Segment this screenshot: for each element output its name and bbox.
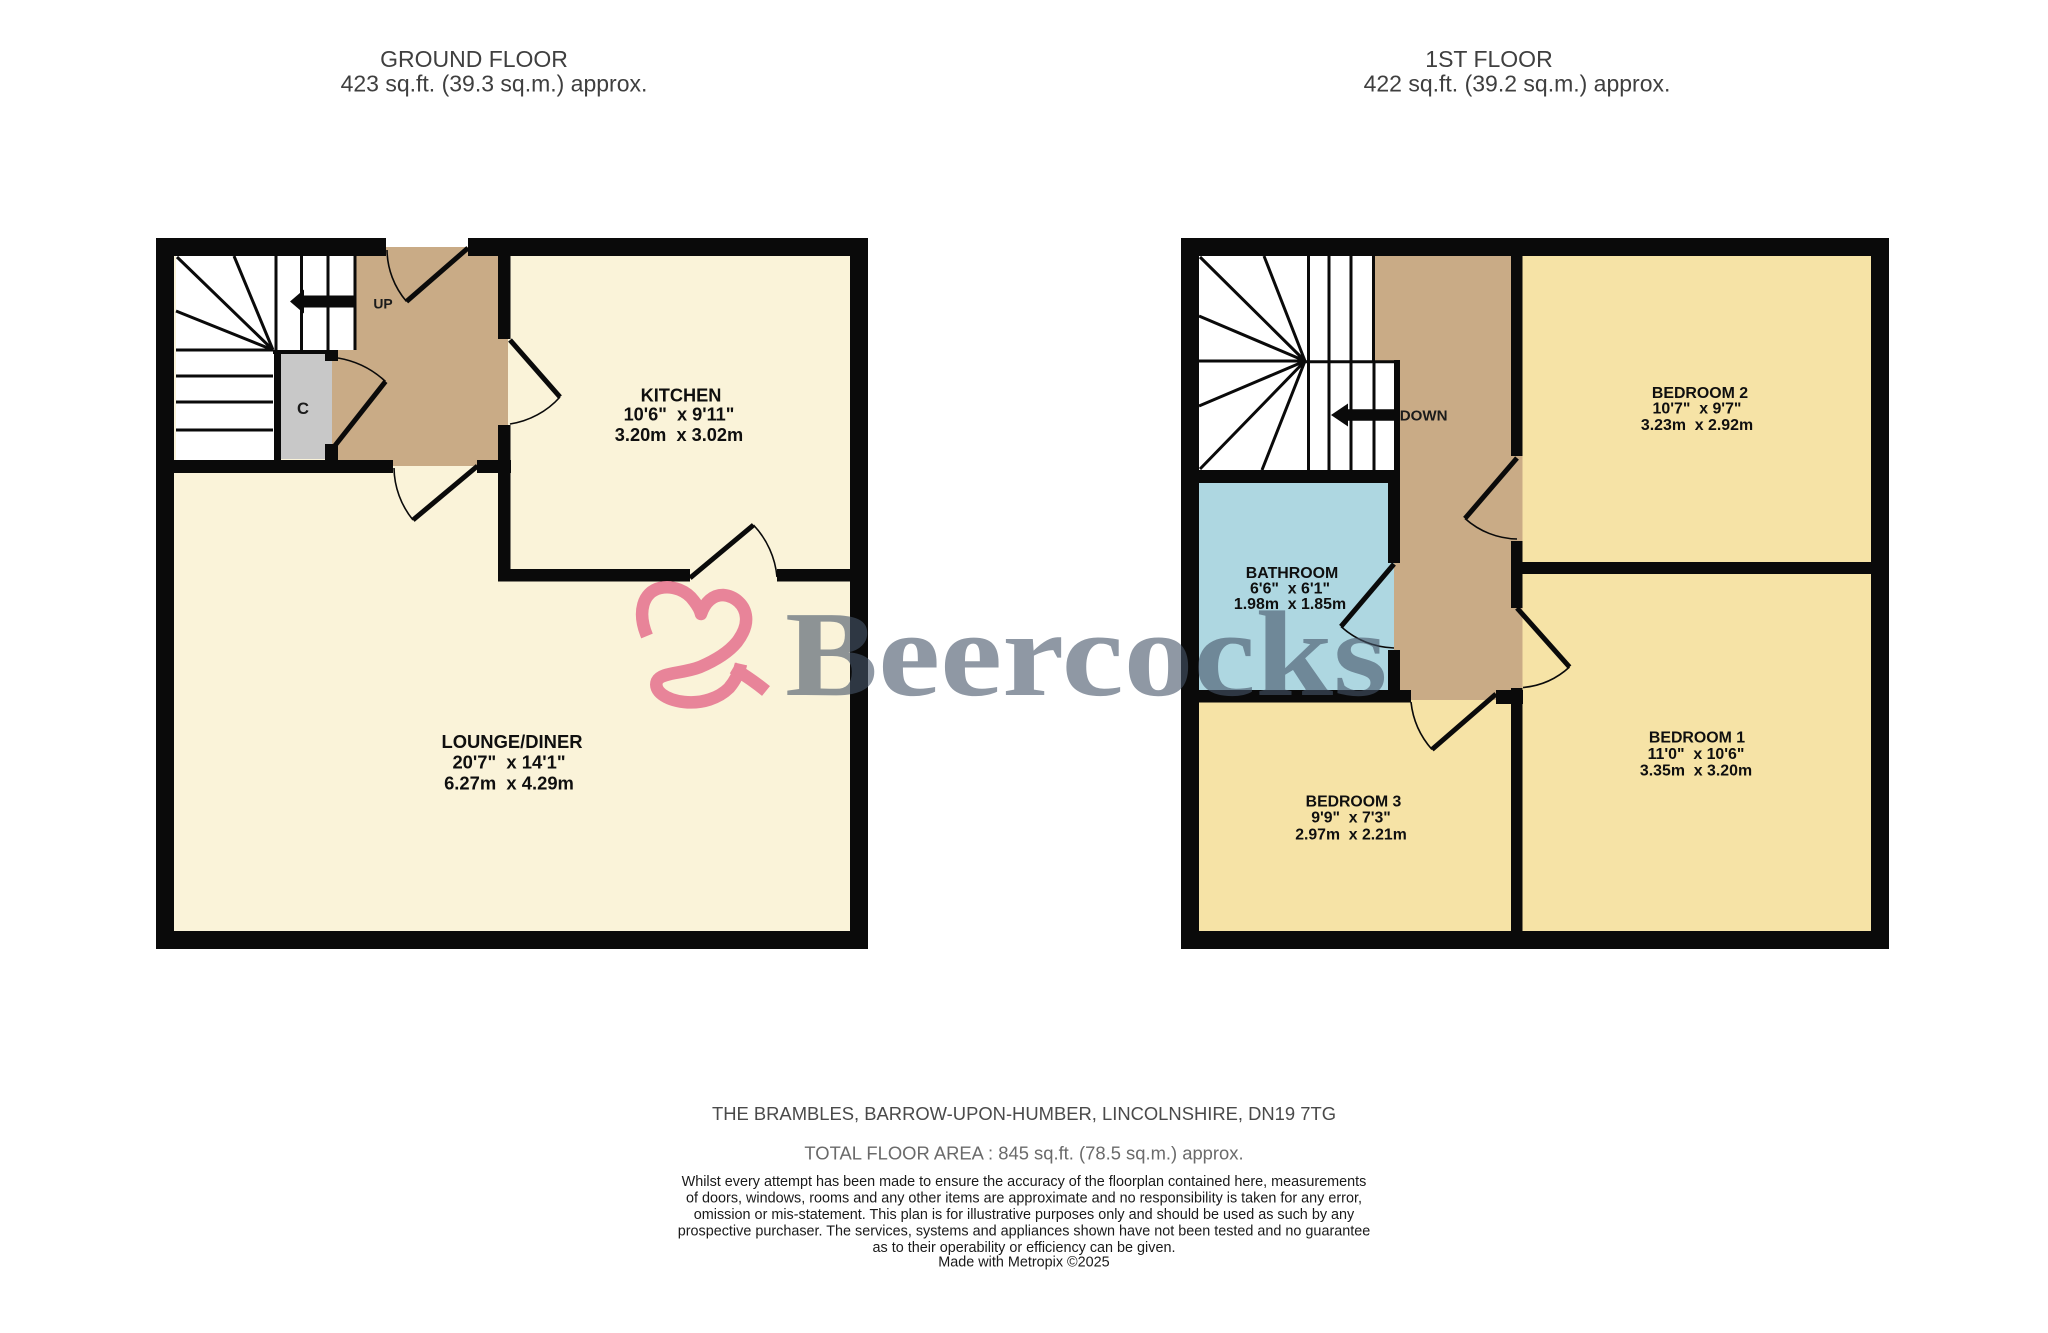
svg-text:1ST FLOOR: 1ST FLOOR bbox=[1425, 46, 1552, 72]
svg-text:TOTAL FLOOR AREA : 845 sq.ft.: TOTAL FLOOR AREA : 845 sq.ft. (78.5 sq.m… bbox=[804, 1143, 1243, 1164]
svg-text:Whilst every attempt has been: Whilst every attempt has been made to en… bbox=[682, 1174, 1367, 1190]
svg-text:3.23m x 2.92m: 3.23m x 2.92m bbox=[1641, 417, 1753, 434]
svg-text:Made with Metropix ©2025: Made with Metropix ©2025 bbox=[938, 1255, 1109, 1271]
svg-text:423 sq.ft. (39.3 sq.m.) approx: 423 sq.ft. (39.3 sq.m.) approx. bbox=[341, 71, 648, 97]
svg-text:DOWN: DOWN bbox=[1400, 407, 1448, 424]
svg-text:GROUND FLOOR: GROUND FLOOR bbox=[380, 46, 568, 72]
svg-text:11'0" x 10'6": 11'0" x 10'6" bbox=[1648, 746, 1745, 763]
svg-text:10'6" x 9'11": 10'6" x 9'11" bbox=[624, 404, 735, 424]
svg-text:KITCHEN: KITCHEN bbox=[641, 385, 722, 405]
svg-text:of doors, windows, rooms and a: of doors, windows, rooms and any other i… bbox=[686, 1190, 1362, 1206]
svg-text:UP: UP bbox=[373, 296, 392, 312]
svg-text:20'7" x 14'1": 20'7" x 14'1" bbox=[452, 751, 565, 772]
svg-text:Beercocks: Beercocks bbox=[785, 587, 1387, 722]
svg-text:6.27m x 4.29m: 6.27m x 4.29m bbox=[444, 773, 574, 794]
svg-text:BEDROOM 1: BEDROOM 1 bbox=[1649, 729, 1745, 746]
svg-text:2.97m x 2.21m: 2.97m x 2.21m bbox=[1295, 827, 1407, 844]
svg-text:3.35m x 3.20m: 3.35m x 3.20m bbox=[1640, 763, 1752, 780]
svg-text:THE BRAMBLES, BARROW-UPON-HUMB: THE BRAMBLES, BARROW-UPON-HUMBER, LINCOL… bbox=[712, 1103, 1336, 1124]
svg-text:C: C bbox=[297, 399, 309, 418]
svg-text:422 sq.ft. (39.2 sq.m.) approx: 422 sq.ft. (39.2 sq.m.) approx. bbox=[1364, 71, 1671, 97]
svg-text:3.20m x 3.02m: 3.20m x 3.02m bbox=[615, 425, 743, 445]
svg-text:BATHROOM: BATHROOM bbox=[1246, 565, 1338, 582]
svg-text:9'9" x 7'3": 9'9" x 7'3" bbox=[1311, 809, 1391, 826]
svg-text:prospective purchaser. The ser: prospective purchaser. The services, sys… bbox=[678, 1224, 1371, 1240]
svg-text:BEDROOM 3: BEDROOM 3 bbox=[1306, 794, 1402, 811]
svg-text:LOUNGE/DINER: LOUNGE/DINER bbox=[441, 731, 582, 752]
svg-text:omission or mis-statement. Thi: omission or mis-statement. This plan is … bbox=[694, 1207, 1355, 1223]
svg-text:10'7" x 9'7": 10'7" x 9'7" bbox=[1653, 400, 1742, 417]
